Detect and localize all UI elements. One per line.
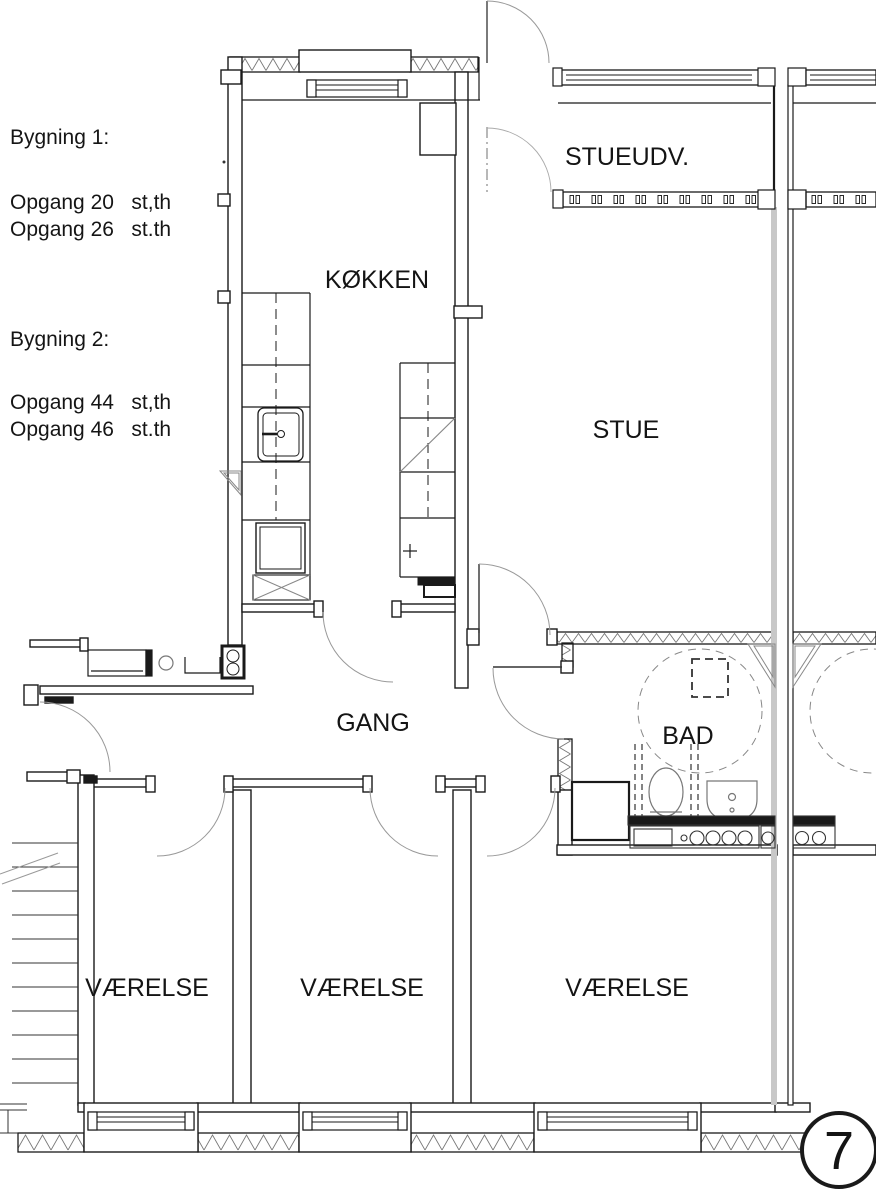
neighbor-turning-circle — [810, 649, 876, 773]
kitchen-west-wall — [228, 57, 242, 645]
neighbor-corner-brace — [793, 644, 821, 687]
neighbor-radiator — [793, 816, 835, 848]
bath-plumbing-screens — [635, 744, 698, 816]
floor-plan-page: KØKKEN STUEUDV. STUE GANG BAD VÆRELSE VÆ… — [0, 0, 876, 1195]
bathroom-door — [493, 667, 564, 739]
toilet — [649, 768, 683, 816]
room-label-room3: VÆRELSE — [565, 974, 689, 1002]
kitchen-fixtures — [220, 293, 455, 600]
kitchen-counter-left — [242, 293, 310, 600]
room-label-living-extension: STUEUDV. — [565, 143, 689, 171]
kitchen-threshold — [418, 577, 455, 597]
bath-vanity-radiator — [628, 816, 775, 848]
reference-dot — [223, 161, 226, 164]
building2-entrance-44: Opgang 44 st,th — [10, 391, 171, 415]
entry-fixtures — [88, 646, 244, 678]
kitchen-cabinet-cross — [253, 575, 310, 600]
kitchen-sink — [258, 408, 303, 461]
south-wall-seg3 — [700, 1103, 776, 1112]
balcony-door — [487, 1, 549, 63]
page-number-marker: 7 — [802, 1113, 876, 1187]
entry-north-wall — [30, 640, 82, 647]
room3-door — [487, 788, 555, 856]
shower-base — [572, 782, 629, 840]
hall-south-wall-1 — [92, 779, 148, 787]
page-number: 7 — [824, 1121, 854, 1181]
room-label-kitchen: KØKKEN — [325, 266, 429, 294]
room3-window — [534, 1103, 701, 1152]
living-room-door — [479, 564, 550, 635]
living-extension-glazed-partition — [553, 190, 876, 209]
living-extension-opening — [487, 127, 551, 192]
entry-wardrobe — [88, 650, 146, 676]
neighbor-unit — [793, 644, 876, 848]
south-wall-seg2 — [410, 1103, 535, 1112]
entry-fixture-circle — [159, 656, 173, 670]
entry-heater — [222, 646, 244, 678]
building1-title: Bygning 1: — [10, 126, 109, 150]
room-label-hallway: GANG — [336, 709, 410, 737]
living-extension-north-window — [553, 68, 876, 86]
room-label-room1: VÆRELSE — [85, 974, 209, 1002]
room2-window — [299, 1103, 411, 1152]
south-wall-seg1 — [197, 1103, 300, 1112]
room2-door — [370, 788, 438, 856]
hall-south-wall-2 — [231, 779, 365, 787]
room1-room2-wall — [233, 790, 251, 1104]
room1-window — [84, 1103, 198, 1152]
kitchen-south-wall-left — [242, 604, 322, 612]
building1-entrance-26: Opgang 26 st.th — [10, 218, 171, 242]
bath-corner-brace — [748, 644, 775, 687]
building1-entrance-20: Opgang 20 st,th — [10, 191, 171, 215]
room2-room3-wall — [453, 790, 471, 1104]
floor-plan-drawing: KØKKEN STUEUDV. STUE GANG BAD VÆRELSE VÆ… — [0, 0, 876, 1195]
kitchen-duct — [420, 103, 456, 155]
room1-west-wall — [78, 775, 94, 1105]
kitchen-counter-right — [400, 363, 455, 577]
kitchen-east-wall — [455, 72, 468, 688]
room-label-room2: VÆRELSE — [300, 974, 424, 1002]
room1-door — [157, 788, 225, 856]
building2-title: Bygning 2: — [10, 328, 109, 352]
bath-floor-drain — [692, 659, 728, 697]
kitchen-dishwasher — [256, 523, 305, 573]
kitchen-window — [299, 50, 411, 97]
kitchen-south-wall-right — [393, 604, 455, 612]
room-label-bathroom: BAD — [662, 722, 713, 750]
bath-turning-circle — [638, 649, 762, 773]
entry-shelf — [185, 657, 220, 673]
room-label-living-room: STUE — [593, 416, 660, 444]
party-wall-gray-bar — [771, 207, 777, 1105]
party-wall — [771, 85, 793, 1105]
building2-entrance-46: Opgang 46 st.th — [10, 418, 171, 442]
kitchen-door — [323, 612, 393, 682]
entry-door — [40, 702, 110, 772]
entry-mid-wall — [40, 686, 253, 694]
hall-south-wall-3 — [445, 779, 478, 787]
entry-divider — [146, 650, 152, 676]
washbasin — [707, 781, 757, 820]
